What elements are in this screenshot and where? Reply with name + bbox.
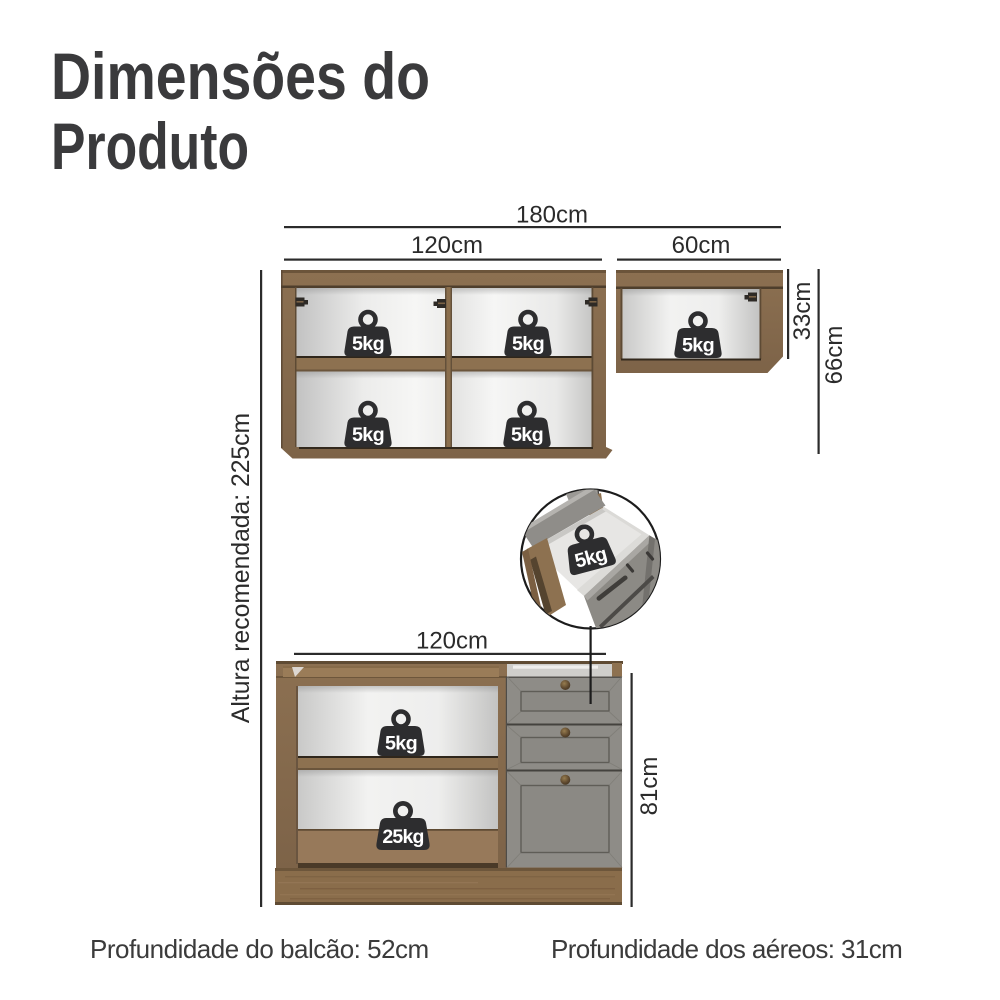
- svg-text:5kg: 5kg: [352, 424, 384, 446]
- svg-text:5kg: 5kg: [512, 333, 544, 355]
- svg-text:5kg: 5kg: [352, 333, 384, 355]
- svg-text:Produto: Produto: [51, 109, 249, 183]
- svg-text:Dimensões do: Dimensões do: [51, 39, 430, 113]
- svg-text:66cm: 66cm: [821, 326, 848, 385]
- svg-text:180cm: 180cm: [516, 202, 588, 229]
- svg-text:120cm: 120cm: [411, 232, 483, 259]
- svg-text:Altura recomendada: 225cm: Altura recomendada: 225cm: [228, 413, 255, 723]
- svg-text:81cm: 81cm: [636, 757, 663, 816]
- svg-text:5kg: 5kg: [385, 733, 417, 755]
- svg-text:60cm: 60cm: [672, 232, 731, 259]
- svg-text:5kg: 5kg: [511, 424, 543, 446]
- svg-text:25kg: 25kg: [382, 826, 423, 848]
- svg-text:120cm: 120cm: [416, 628, 488, 655]
- svg-text:Profundidade dos aéreos: 31cm: Profundidade dos aéreos: 31cm: [551, 934, 902, 964]
- svg-text:Profundidade do balcão: 52cm: Profundidade do balcão: 52cm: [90, 934, 429, 964]
- svg-text:5kg: 5kg: [682, 335, 714, 357]
- svg-text:33cm: 33cm: [789, 282, 816, 341]
